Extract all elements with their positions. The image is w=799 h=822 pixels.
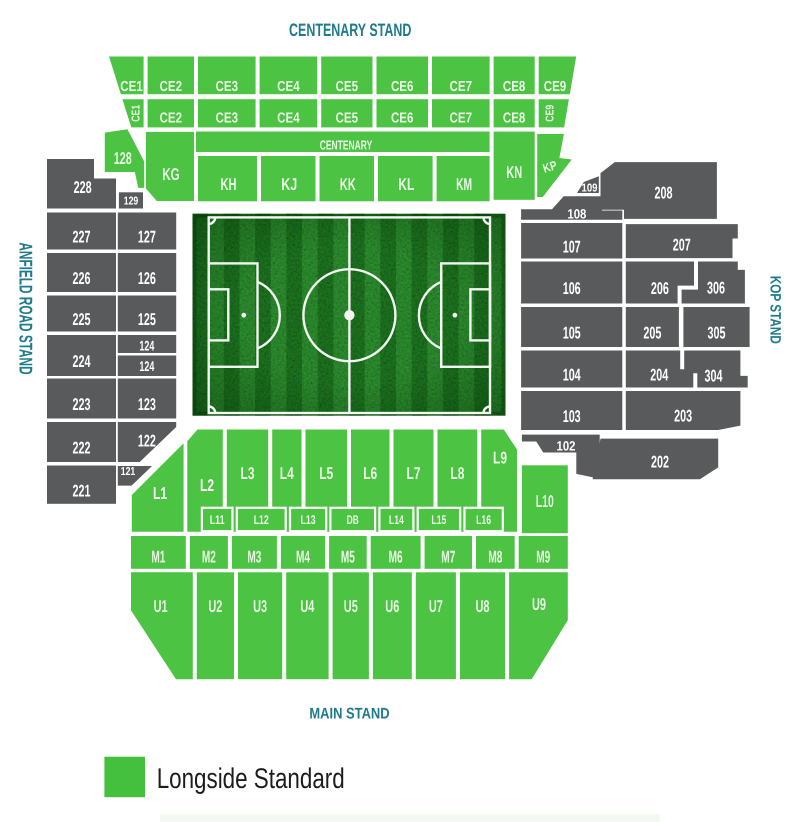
svg-text:L8: L8 [450, 464, 464, 483]
svg-text:124: 124 [139, 338, 154, 354]
svg-text:KM: KM [456, 175, 472, 194]
svg-text:L15: L15 [431, 513, 446, 527]
svg-text:205: 205 [643, 324, 661, 343]
svg-text:CENTENARY: CENTENARY [320, 137, 373, 152]
svg-text:M3: M3 [247, 548, 261, 567]
svg-text:U4: U4 [300, 597, 314, 616]
svg-text:KK: KK [340, 175, 356, 194]
svg-text:L9: L9 [493, 449, 507, 468]
svg-text:DB: DB [347, 513, 359, 527]
svg-text:KOP STAND: KOP STAND [767, 276, 784, 344]
svg-text:KJ: KJ [281, 175, 297, 194]
svg-text:221: 221 [73, 481, 91, 500]
svg-text:CE5: CE5 [336, 111, 359, 127]
svg-text:208: 208 [655, 184, 673, 203]
svg-text:207: 207 [673, 236, 691, 255]
svg-text:M4: M4 [296, 548, 310, 567]
svg-text:CE7: CE7 [450, 111, 473, 127]
svg-text:M6: M6 [389, 548, 403, 567]
svg-text:227: 227 [73, 228, 91, 247]
svg-text:U2: U2 [208, 597, 222, 616]
svg-text:128: 128 [114, 149, 132, 168]
svg-text:127: 127 [138, 228, 156, 247]
svg-text:U1: U1 [154, 597, 168, 616]
svg-text:L11: L11 [210, 513, 225, 527]
svg-text:L2: L2 [200, 476, 214, 495]
svg-text:KG: KG [162, 165, 180, 184]
svg-text:M7: M7 [441, 548, 455, 567]
svg-text:Longside Standard: Longside Standard [157, 763, 345, 795]
svg-text:L13: L13 [301, 513, 316, 527]
svg-text:KL: KL [398, 175, 414, 194]
svg-text:U7: U7 [429, 597, 443, 616]
svg-text:U6: U6 [385, 597, 399, 616]
svg-text:125: 125 [138, 310, 156, 329]
svg-text:M9: M9 [536, 548, 550, 567]
svg-text:U9: U9 [532, 595, 546, 614]
svg-text:KN: KN [506, 163, 522, 182]
svg-text:U3: U3 [253, 597, 267, 616]
svg-text:108: 108 [567, 206, 586, 221]
svg-text:202: 202 [651, 453, 669, 472]
svg-text:124: 124 [139, 358, 154, 374]
svg-text:225: 225 [73, 310, 91, 329]
svg-text:L3: L3 [241, 464, 255, 483]
svg-text:129: 129 [124, 196, 139, 208]
svg-text:CE1: CE1 [131, 104, 143, 121]
svg-text:203: 203 [674, 407, 692, 426]
svg-text:CE8: CE8 [503, 79, 526, 95]
svg-text:305: 305 [708, 324, 726, 343]
svg-text:L1: L1 [153, 484, 167, 503]
svg-text:109: 109 [582, 183, 598, 195]
svg-text:204: 204 [650, 366, 668, 385]
svg-text:M1: M1 [151, 548, 165, 567]
svg-text:L7: L7 [407, 464, 421, 483]
svg-text:222: 222 [73, 439, 91, 458]
svg-text:L10: L10 [536, 492, 554, 511]
svg-text:CE9: CE9 [544, 79, 567, 95]
svg-text:CE4: CE4 [277, 79, 300, 95]
svg-text:KH: KH [221, 175, 237, 194]
svg-text:104: 104 [563, 366, 581, 385]
svg-text:MAIN STAND: MAIN STAND [309, 705, 389, 722]
svg-text:121: 121 [121, 466, 136, 478]
svg-text:M2: M2 [202, 548, 216, 567]
svg-text:123: 123 [138, 395, 156, 414]
svg-text:228: 228 [74, 178, 92, 197]
svg-text:224: 224 [73, 352, 91, 371]
svg-text:223: 223 [73, 395, 91, 414]
svg-text:L12: L12 [254, 513, 269, 527]
svg-text:CE3: CE3 [216, 111, 239, 127]
svg-text:CE7: CE7 [450, 79, 473, 95]
svg-text:U8: U8 [476, 597, 490, 616]
svg-text:304: 304 [705, 367, 723, 386]
svg-text:102: 102 [557, 439, 576, 454]
svg-text:306: 306 [707, 279, 725, 298]
svg-text:CE3: CE3 [216, 79, 239, 95]
svg-text:L14: L14 [389, 513, 404, 527]
svg-text:CE2: CE2 [160, 79, 183, 95]
svg-text:122: 122 [138, 432, 156, 451]
svg-text:L6: L6 [363, 464, 377, 483]
svg-text:226: 226 [73, 269, 91, 288]
svg-text:M5: M5 [341, 548, 355, 567]
svg-text:103: 103 [563, 407, 581, 426]
svg-text:CE5: CE5 [336, 79, 359, 95]
svg-text:L5: L5 [319, 464, 333, 483]
svg-text:CE4: CE4 [277, 111, 300, 127]
svg-text:U5: U5 [344, 597, 358, 616]
svg-text:105: 105 [563, 324, 581, 343]
svg-text:CE6: CE6 [391, 111, 414, 127]
svg-text:CE8: CE8 [503, 111, 526, 127]
svg-text:L4: L4 [280, 464, 294, 483]
svg-text:CENTENARY STAND: CENTENARY STAND [289, 20, 411, 40]
svg-text:L16: L16 [476, 513, 491, 527]
svg-text:CE2: CE2 [160, 111, 183, 127]
svg-text:M8: M8 [488, 548, 502, 567]
svg-text:ANFIELD ROAD STAND: ANFIELD ROAD STAND [15, 242, 36, 374]
svg-text:CE1: CE1 [120, 79, 143, 95]
svg-text:126: 126 [138, 269, 156, 288]
svg-text:CE9: CE9 [545, 105, 557, 122]
svg-text:106: 106 [563, 279, 581, 298]
svg-text:CE6: CE6 [391, 79, 414, 95]
svg-text:107: 107 [563, 237, 581, 256]
svg-text:206: 206 [651, 279, 669, 298]
